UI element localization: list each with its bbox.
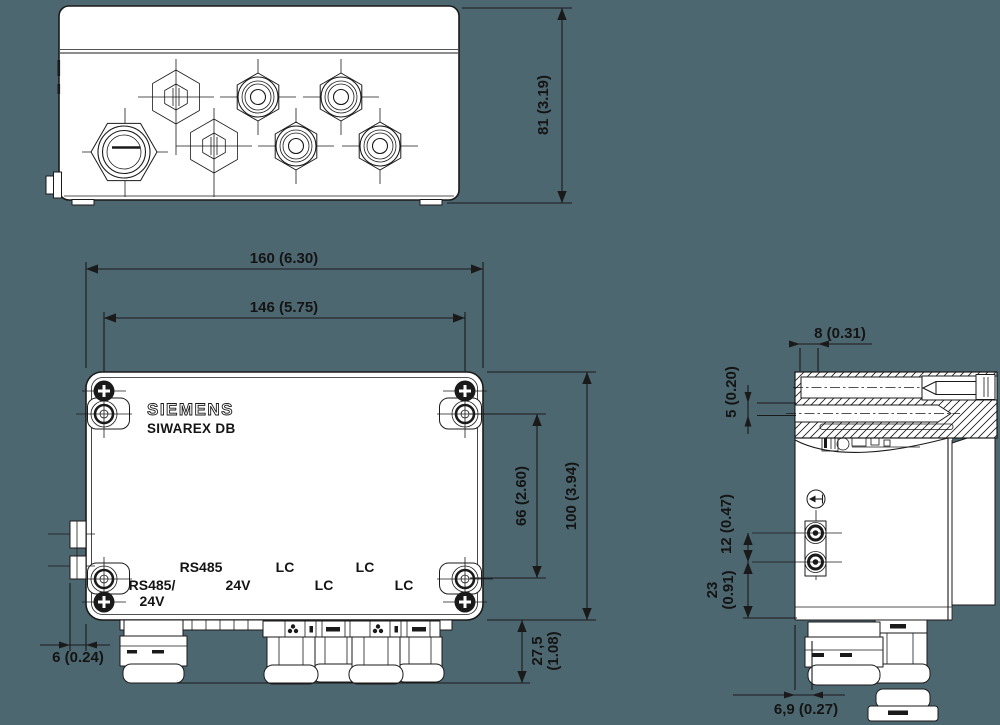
- dim-side-hole-text: 5 (0.20): [723, 366, 740, 418]
- dim-side-gland-offset-text: 6,9 (0.27): [774, 701, 838, 718]
- dim-connector-offset-text-2: (0.91): [720, 570, 737, 609]
- gland-top-strip: [263, 621, 440, 637]
- siwarex-db-dimension-drawing: 81 (3.19) 160 (6.30) 146 (5.75): [0, 0, 1000, 725]
- mount-foot: [72, 200, 94, 206]
- cable-gland-front: [349, 637, 403, 684]
- dim-side-lip: 8 (0.31): [789, 325, 872, 371]
- dim-gland-depth-text-1: 27,5: [529, 636, 546, 665]
- dim-width-mounting-text: 146 (5.75): [250, 299, 318, 316]
- dim-side-lip-text: 8 (0.31): [814, 325, 866, 342]
- brand-logo: SIEMENS: [147, 400, 234, 419]
- dim-height-mounting-text: 66 (2.60): [513, 466, 530, 526]
- side-view: 8 (0.31) 5 (0.20) 12 (0.47) 23 (0.91) 6: [704, 325, 997, 721]
- port-label-24v: 24V: [226, 577, 252, 593]
- cable-gland-front: [264, 637, 318, 684]
- port-label-lc1: LC: [276, 559, 295, 575]
- dim-top-height: 81 (3.19): [447, 8, 572, 203]
- dim-width-outer-text: 160 (6.30): [250, 250, 318, 267]
- dim-gland-depth-text-2: (1.08): [545, 631, 562, 670]
- port-label-lc3: LC: [356, 559, 375, 575]
- port-label-lc2: LC: [315, 577, 334, 593]
- dim-top-height-text: 81 (3.19): [535, 75, 552, 135]
- dim-connector-offset: 23 (0.91): [704, 562, 797, 618]
- cable-gland-side-front: [805, 622, 883, 685]
- dim-gland-depth: 27,5 (1.08): [522, 620, 562, 683]
- port-label-lc4: LC: [395, 577, 414, 593]
- top-view: 81 (3.19): [46, 6, 572, 205]
- dim-bracket-offset-text: 6 (0.24): [52, 649, 104, 666]
- product-name: SIWAREX DB: [147, 421, 236, 436]
- drawing-stage: 81 (3.19) 160 (6.30) 146 (5.75): [0, 0, 1000, 725]
- dim-connector-offset-text-1: 23: [704, 582, 721, 599]
- port-label-rs485-24v-1: RS485/: [129, 577, 176, 593]
- dim-side-hole: 5 (0.20): [723, 366, 796, 434]
- cable-gland-front-large: [120, 620, 187, 683]
- spare-gland-cap: [868, 689, 938, 721]
- lid-cross-section: [786, 372, 997, 438]
- dim-connector-spacing-text: 12 (0.47): [718, 494, 735, 554]
- port-label-rs485: RS485: [180, 559, 223, 575]
- dim-height-outer: 100 (3.94): [487, 372, 596, 620]
- dim-connector-spacing: 12 (0.47): [718, 494, 748, 562]
- port-label-rs485-24v-2: 24V: [140, 593, 166, 609]
- mount-foot: [420, 200, 442, 206]
- front-view: 160 (6.30) 146 (5.75): [40, 250, 596, 684]
- dim-height-outer-text: 100 (3.94): [563, 462, 580, 530]
